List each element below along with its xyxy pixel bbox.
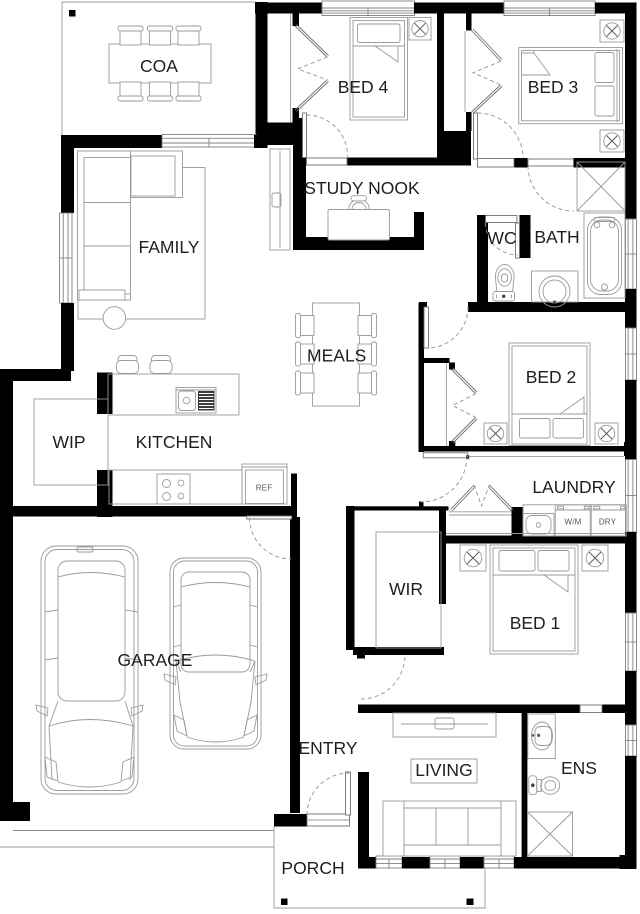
svg-text:MEALS: MEALS [307, 345, 366, 365]
svg-text:REF: REF [256, 484, 273, 493]
svg-text:BATH: BATH [534, 227, 579, 247]
svg-text:W/M: W/M [564, 518, 581, 527]
svg-text:BED 2: BED 2 [526, 367, 577, 387]
svg-text:LAUNDRY: LAUNDRY [532, 477, 616, 497]
svg-text:STUDY NOOK: STUDY NOOK [304, 178, 420, 198]
svg-text:PORCH: PORCH [281, 858, 344, 878]
svg-text:FAMILY: FAMILY [139, 237, 200, 257]
svg-text:COA: COA [140, 56, 178, 76]
svg-text:WIR: WIR [389, 579, 423, 599]
svg-text:ENTRY: ENTRY [299, 738, 358, 758]
svg-text:BED 1: BED 1 [510, 613, 561, 633]
svg-text:DRY: DRY [599, 518, 617, 527]
svg-text:BED 4: BED 4 [338, 77, 389, 97]
svg-text:ENS: ENS [561, 758, 597, 778]
svg-text:BED 3: BED 3 [528, 77, 579, 97]
svg-text:KITCHEN: KITCHEN [136, 432, 213, 452]
svg-text:WIP: WIP [52, 432, 85, 452]
svg-text:LIVING: LIVING [415, 760, 472, 780]
svg-text:GARAGE: GARAGE [118, 650, 193, 670]
svg-text:WC: WC [487, 228, 516, 248]
